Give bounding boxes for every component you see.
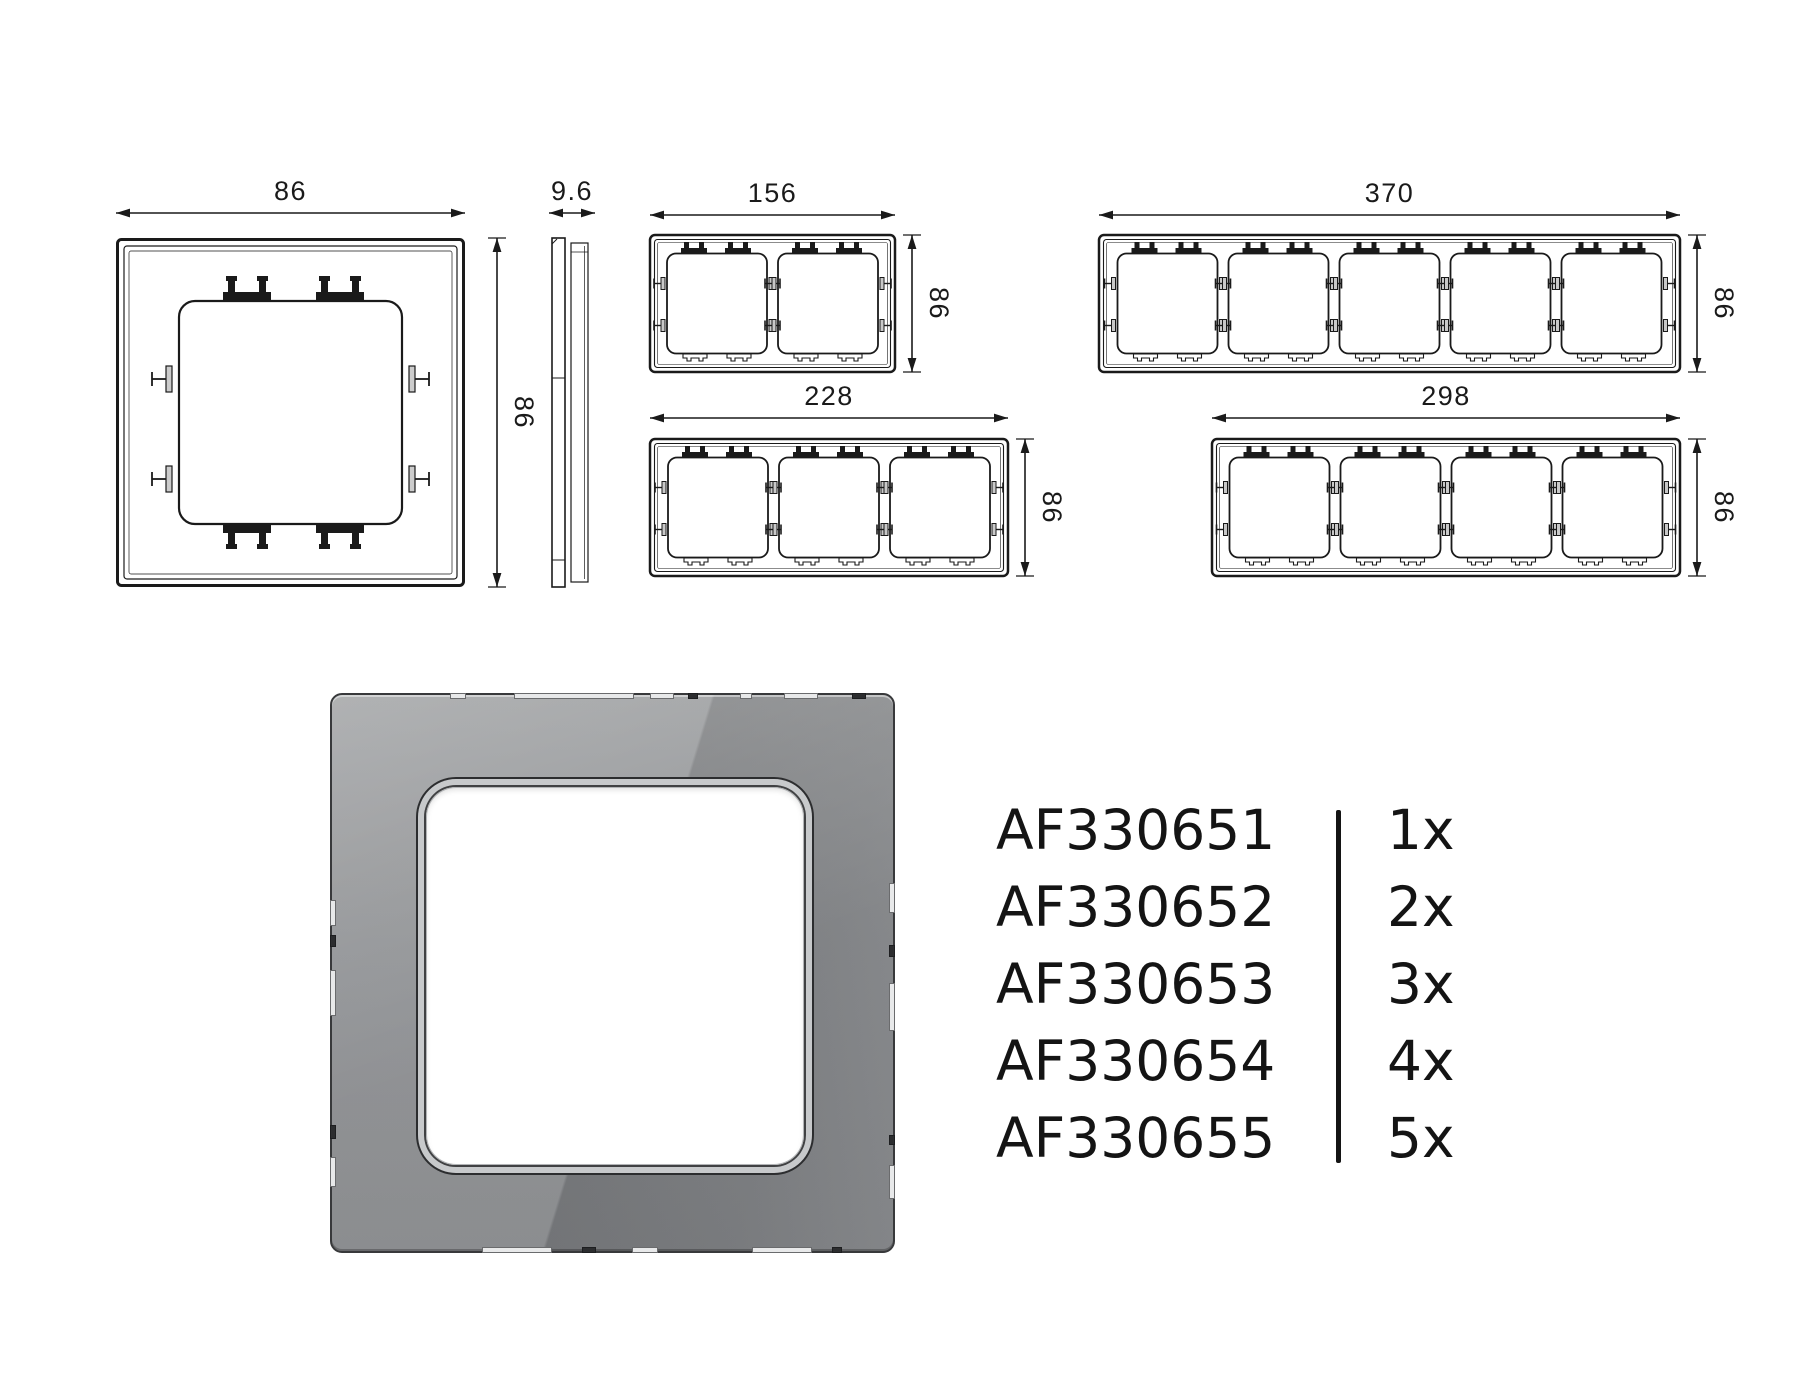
clip-mark [482, 1247, 552, 1253]
clip-mark [330, 1125, 336, 1139]
product-qty-column: 1x2x3x4x5x [1387, 792, 1455, 1177]
clip-mark [650, 693, 674, 699]
clip-mark [330, 900, 336, 926]
clip-mark [582, 1247, 596, 1253]
dimension-height-label: 86 [509, 396, 539, 429]
product-code: AF330653 [996, 946, 1288, 1023]
clip-mark [450, 693, 466, 699]
clip-mark [852, 693, 866, 699]
clip-mark [330, 970, 336, 1016]
product-qty: 4x [1387, 1023, 1455, 1100]
dimension-height-label: 86 [1709, 491, 1739, 524]
dimension-width-label: 86 [274, 176, 307, 206]
clip-mark [688, 693, 698, 699]
glass-frame-render [330, 693, 895, 1253]
product-code: AF330652 [996, 869, 1288, 946]
clip-mark [752, 1247, 812, 1253]
dimension-width-label: 370 [1365, 178, 1415, 208]
technical-drawings: 86869.615686370862288629886 [0, 0, 1800, 1400]
product-qty: 2x [1387, 869, 1455, 946]
product-qty: 3x [1387, 946, 1455, 1023]
product-list: AF330651AF330652AF330653AF330654AF330655… [996, 792, 1455, 1177]
product-qty: 5x [1387, 1100, 1455, 1177]
dimension-height-label: 86 [1037, 491, 1067, 524]
product-code: AF330651 [996, 792, 1288, 869]
product-list-divider [1336, 810, 1341, 1163]
clip-mark [889, 983, 895, 1031]
clip-mark [740, 693, 752, 699]
clip-mark [889, 1165, 895, 1199]
clip-mark [784, 693, 818, 699]
dimension-width-label: 9.6 [551, 176, 593, 206]
clip-mark [330, 1157, 336, 1187]
clip-mark [514, 693, 634, 699]
dimension-width-label: 228 [804, 381, 854, 411]
product-code-column: AF330651AF330652AF330653AF330654AF330655 [996, 792, 1288, 1177]
clip-mark [330, 935, 336, 947]
clip-mark [889, 945, 895, 957]
clip-mark [832, 1247, 842, 1253]
product-code: AF330654 [996, 1023, 1288, 1100]
dimension-width-label: 298 [1421, 381, 1471, 411]
frame-opening [426, 787, 804, 1165]
dimension-height-label: 86 [924, 287, 954, 320]
clip-mark [889, 1135, 895, 1145]
product-qty: 1x [1387, 792, 1455, 869]
dimension-width-label: 156 [748, 178, 798, 208]
clip-mark [632, 1247, 658, 1253]
clip-mark [889, 883, 895, 913]
dimension-height-label: 86 [1709, 287, 1739, 320]
product-code: AF330655 [996, 1100, 1288, 1177]
